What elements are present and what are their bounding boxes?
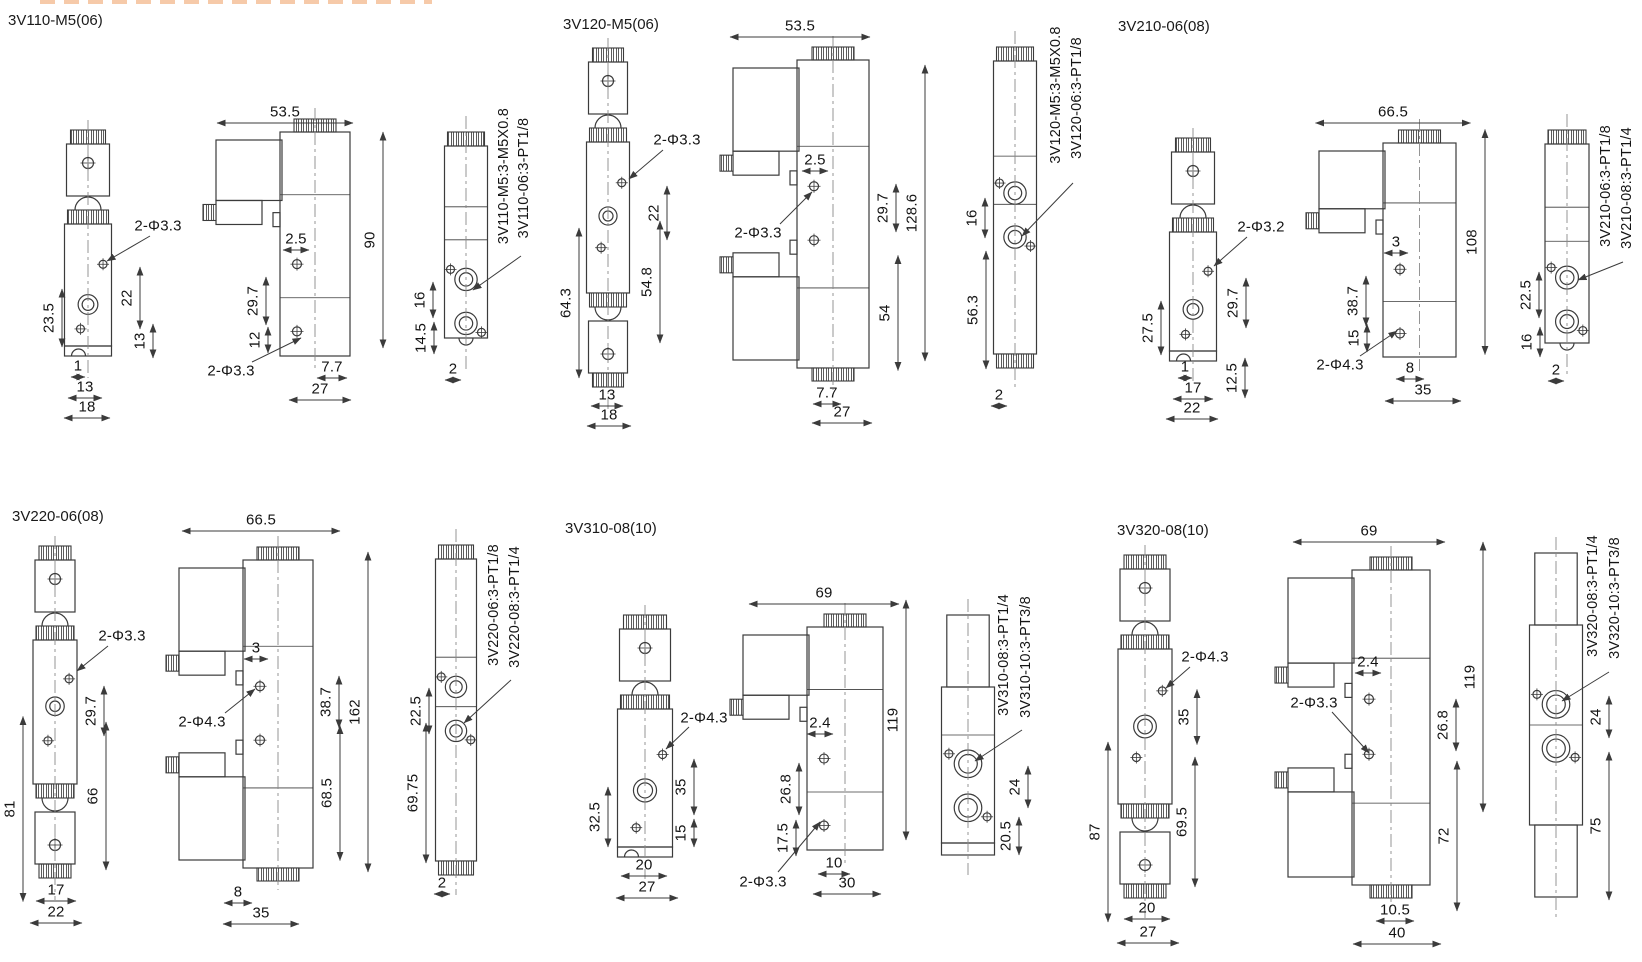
dimension-label: 68.5 [319, 778, 336, 808]
dimension-label: 35 [673, 778, 690, 795]
dimension-label: 40 [1388, 925, 1405, 942]
valve-model-title: 3V320-08(10) [1117, 522, 1209, 539]
dimension-label: 69 [1360, 523, 1377, 540]
dimension-label: 27 [311, 381, 328, 398]
dimension-label: 87 [1087, 823, 1104, 840]
dimension-label: 1 [74, 358, 83, 375]
dimension-label: 119 [885, 708, 902, 733]
dimension-label: 15 [673, 824, 690, 841]
diameter-callout: 2-Φ4.3 [1181, 649, 1228, 666]
dimension-label: 2.5 [804, 152, 825, 169]
dimension-label: 17 [47, 882, 64, 899]
dimension-label: 15 [1346, 329, 1363, 346]
part-spec-label: 3V110-06:3-PT1/8 [516, 118, 532, 239]
dimension-label: 8 [234, 884, 243, 901]
dimension-label: 18 [600, 407, 617, 424]
part-spec-label: 3V310-08:3-PT1/4 [996, 594, 1012, 716]
dimension-label: 81 [2, 800, 19, 817]
dimension-label: 35 [252, 905, 269, 922]
dimension-label: 64.3 [558, 288, 575, 318]
dimension-label: 17.5 [775, 823, 792, 853]
dimension-label: 8 [1406, 360, 1415, 377]
dimension-label: 56.3 [965, 295, 982, 325]
dimension-label: 22 [646, 204, 663, 221]
valve-model-title: 3V310-08(10) [565, 520, 657, 537]
dimension-label: 72 [1436, 827, 1453, 844]
part-spec-label: 3V220-06:3-PT1/8 [486, 544, 502, 666]
diameter-callout: 2-Φ3.3 [134, 218, 181, 235]
dimension-label: 16 [964, 209, 981, 226]
dimension-label: 1 [1181, 359, 1190, 376]
dimension-label: 10.5 [1380, 902, 1410, 919]
dimension-label: 24 [1588, 708, 1605, 725]
line-art [0, 0, 1642, 962]
dimension-label: 35 [1414, 382, 1431, 399]
part-spec-label: 3V310-10:3-PT3/8 [1018, 596, 1034, 718]
diameter-callout: 2-Φ4.3 [1316, 357, 1363, 374]
valve-model-title: 3V110-M5(06) [8, 12, 103, 29]
dimension-label: 29.7 [83, 696, 100, 726]
dimension-label: 16 [1519, 333, 1536, 350]
dimension-label: 22 [47, 904, 64, 921]
dimension-label: 2 [1552, 362, 1561, 379]
drawing-canvas: 3V110-M5(06) 3V120-M5(06) 3V210-06(08) 3… [0, 0, 1642, 962]
dimension-label: 2 [438, 875, 447, 892]
dimension-label: 66 [85, 787, 102, 804]
diameter-callout: 2-Φ3.3 [734, 225, 781, 242]
dimension-label: 90 [362, 231, 379, 248]
dimension-label: 7.7 [321, 359, 342, 376]
dimension-label: 16 [412, 291, 429, 308]
diameter-callout: 2-Φ3.3 [1290, 695, 1337, 712]
dimension-label: 17 [1184, 380, 1201, 397]
dimension-label: 26.8 [778, 774, 795, 804]
diameter-callout: 2-Φ4.3 [680, 710, 727, 727]
dimension-label: 128.6 [904, 194, 921, 233]
dimension-label: 108 [1464, 229, 1481, 255]
diameter-callout: 2-Φ4.3 [178, 714, 225, 731]
dimension-label: 54.8 [639, 267, 656, 297]
diameter-callout: 2-Φ3.3 [653, 132, 700, 149]
diameter-callout: 2-Φ3.3 [207, 363, 254, 380]
dimension-label: 30 [838, 875, 855, 892]
part-spec-label: 3V320-08:3-PT1/4 [1585, 535, 1601, 657]
dimension-label: 7.7 [816, 385, 837, 402]
valve-model-title: 3V210-06(08) [1118, 18, 1210, 35]
dimension-label: 35 [1176, 708, 1193, 725]
valve-model-title: 3V220-06(08) [12, 508, 104, 525]
dimension-label: 69 [815, 585, 832, 602]
cropped-red-artifact [40, 0, 432, 4]
dimension-label: 29.7 [875, 193, 892, 223]
dimension-label: 54 [877, 304, 894, 321]
valve-model-title: 3V120-M5(06) [563, 16, 659, 33]
diameter-callout: 2-Φ3.2 [1237, 219, 1284, 236]
part-spec-label: 3V120-M5:3-M5X0.8 [1048, 26, 1064, 163]
dimension-label: 3 [1392, 234, 1401, 251]
dimension-label: 27 [638, 879, 655, 896]
dimension-label: 13 [76, 379, 93, 396]
dimension-label: 27 [833, 404, 850, 421]
dimension-label: 14.5 [413, 323, 430, 353]
part-spec-label: 3V120-06:3-PT1/8 [1069, 37, 1085, 159]
dimension-label: 18 [78, 399, 95, 416]
dimension-label: 10 [825, 855, 842, 872]
diameter-callout: 2-Φ3.3 [98, 628, 145, 645]
dimension-label: 13 [598, 387, 615, 404]
dimension-label: 69.75 [405, 774, 422, 813]
dimension-label: 27 [1139, 924, 1156, 941]
dimension-label: 119 [1462, 665, 1479, 690]
dimension-label: 38.7 [318, 687, 335, 717]
dimension-label: 22.5 [408, 696, 425, 726]
diameter-callout: 2-Φ3.3 [739, 874, 786, 891]
dimension-label: 29.7 [1225, 288, 1242, 318]
dimension-label: 20 [1138, 900, 1155, 917]
dimension-label: 66.5 [246, 512, 276, 529]
part-spec-label: 3V220-08:3-PT1/4 [507, 546, 523, 668]
dimension-label: 75 [1588, 817, 1605, 834]
part-spec-label: 3V320-10:3-PT3/8 [1607, 537, 1623, 659]
dimension-label: 2.4 [809, 715, 830, 732]
dimension-label: 20 [635, 857, 652, 874]
dimension-label: 32.5 [587, 802, 604, 832]
dimension-label: 24 [1007, 778, 1024, 795]
part-spec-label: 3V110-M5:3-M5X0.8 [496, 108, 512, 244]
dimension-label: 12.5 [1224, 363, 1241, 393]
dimension-label: 38.7 [1345, 286, 1362, 316]
dimension-label: 13 [132, 332, 149, 349]
dimension-label: 20.5 [998, 821, 1015, 851]
dimension-label: 2 [449, 361, 458, 378]
dimension-label: 2.4 [1357, 654, 1378, 671]
dimension-label: 2.5 [285, 231, 306, 248]
dimension-label: 53.5 [785, 18, 815, 35]
dimension-label: 22.5 [1518, 280, 1535, 310]
dimension-label: 29.7 [245, 286, 262, 316]
dimension-label: 23.5 [41, 303, 58, 333]
dimension-label: 22 [119, 289, 136, 306]
dimension-label: 162 [347, 699, 364, 725]
part-spec-label: 3V210-08:3-PT1/4 [1619, 127, 1635, 249]
dimension-label: 2 [995, 387, 1004, 404]
dimension-label: 22 [1183, 400, 1200, 417]
dimension-label: 3 [252, 640, 261, 657]
dimension-label: 69.5 [1174, 807, 1191, 837]
dimension-label: 66.5 [1378, 104, 1408, 121]
dimension-label: 53.5 [270, 104, 300, 121]
dimension-label: 26.8 [1435, 710, 1452, 740]
dimension-label: 12 [247, 331, 264, 348]
part-spec-label: 3V210-06:3-PT1/8 [1598, 125, 1614, 247]
dimension-label: 27.5 [1140, 313, 1157, 343]
